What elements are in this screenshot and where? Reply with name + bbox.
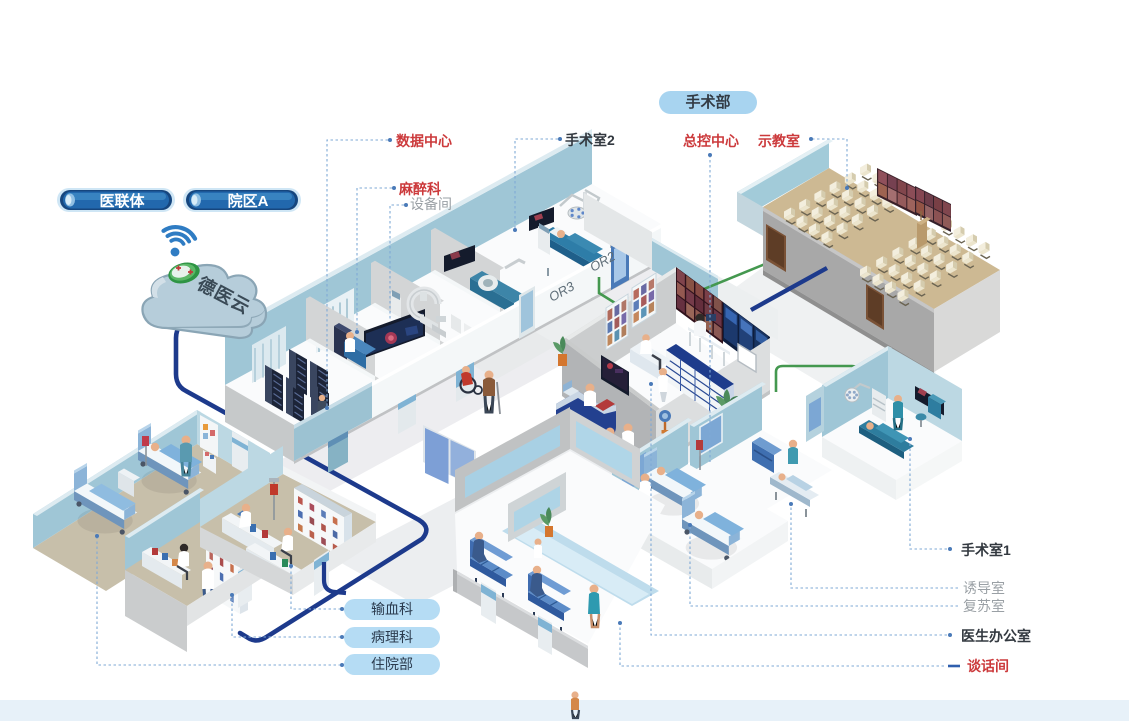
svg-text:复苏室: 复苏室 [963,598,1005,614]
svg-text:医联体: 医联体 [99,192,145,210]
svg-text:病理科: 病理科 [371,629,413,645]
svg-text:手术部: 手术部 [685,93,730,111]
svg-text:手术室2: 手术室2 [565,132,615,148]
svg-text:医生办公室: 医生办公室 [961,628,1031,644]
svg-text:数据中心: 数据中心 [396,133,452,149]
svg-text:输血科: 输血科 [371,601,413,617]
svg-text:设备间: 设备间 [410,196,452,212]
svg-text:示教室: 示教室 [758,133,800,149]
svg-text:手术室1: 手术室1 [961,542,1011,558]
svg-text:谈话间: 谈话间 [967,658,1009,674]
svg-text:麻醉科: 麻醉科 [398,181,441,197]
svg-text:住院部: 住院部 [371,656,413,672]
svg-text:院区A: 院区A [228,192,269,210]
svg-text:诱导室: 诱导室 [963,580,1005,596]
svg-text:总控中心: 总控中心 [683,133,739,149]
